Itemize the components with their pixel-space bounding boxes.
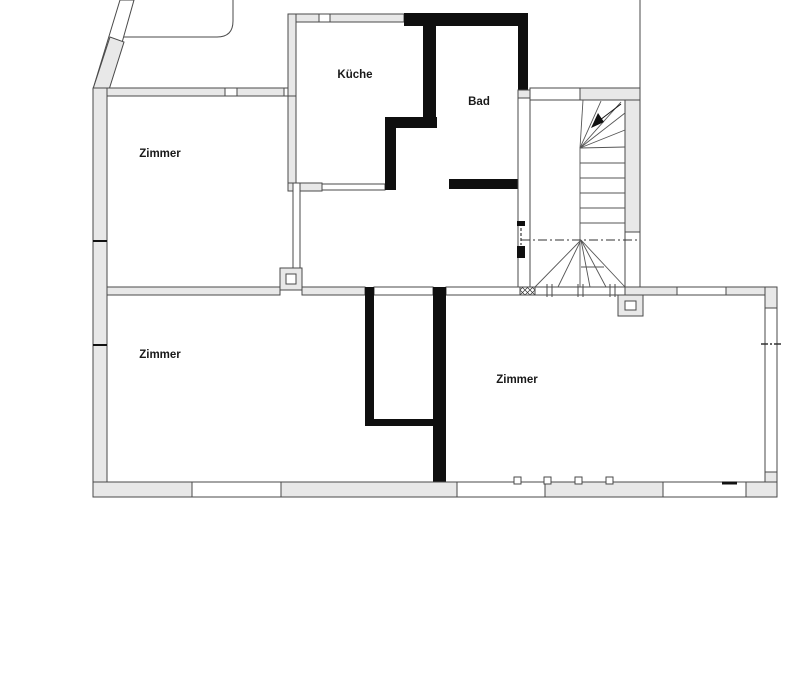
wall-section-hatch	[520, 287, 535, 295]
kitchen-door-opening	[322, 184, 385, 190]
stair-direction-arrow	[591, 104, 621, 128]
top-wall	[107, 88, 288, 96]
kitchen-top-wall	[296, 14, 404, 22]
winder-staircase	[517, 88, 640, 287]
hall-thin-wall	[293, 183, 300, 268]
angled-wall	[93, 37, 124, 96]
floor-plan-page: Zimmer Küche Bad Zimmer Zimmer	[0, 0, 798, 680]
room-labels: Zimmer Küche Bad Zimmer Zimmer	[139, 69, 538, 386]
room-label-zimmer-bottom-left: Zimmer	[139, 349, 181, 361]
partition-walls	[365, 13, 528, 482]
window-bottom-mid	[457, 482, 545, 497]
stair-right-wall	[625, 100, 640, 232]
room-label-zimmer-bottom-right: Zimmer	[496, 374, 538, 386]
room-label-bad: Bad	[468, 96, 490, 108]
room-label-zimmer-top-left: Zimmer	[139, 148, 181, 160]
window-bottom-left	[192, 482, 281, 497]
room-kitchen-divider	[288, 96, 296, 183]
window-break	[225, 88, 237, 96]
room-label-kueche: Küche	[337, 69, 372, 81]
stair-left-wall	[518, 98, 530, 287]
floor-plan-svg: Zimmer Küche Bad Zimmer Zimmer	[0, 0, 798, 680]
window-break	[319, 14, 330, 22]
chimney-pillar-left	[280, 268, 302, 290]
chimney-pillar-right	[618, 295, 643, 316]
right-wall	[761, 287, 783, 497]
site-outline	[119, 0, 640, 88]
stair-top-wall	[580, 88, 640, 100]
window-right	[765, 308, 777, 472]
stair-treads	[521, 100, 640, 287]
window-break	[677, 287, 726, 295]
left-wall	[93, 88, 107, 497]
